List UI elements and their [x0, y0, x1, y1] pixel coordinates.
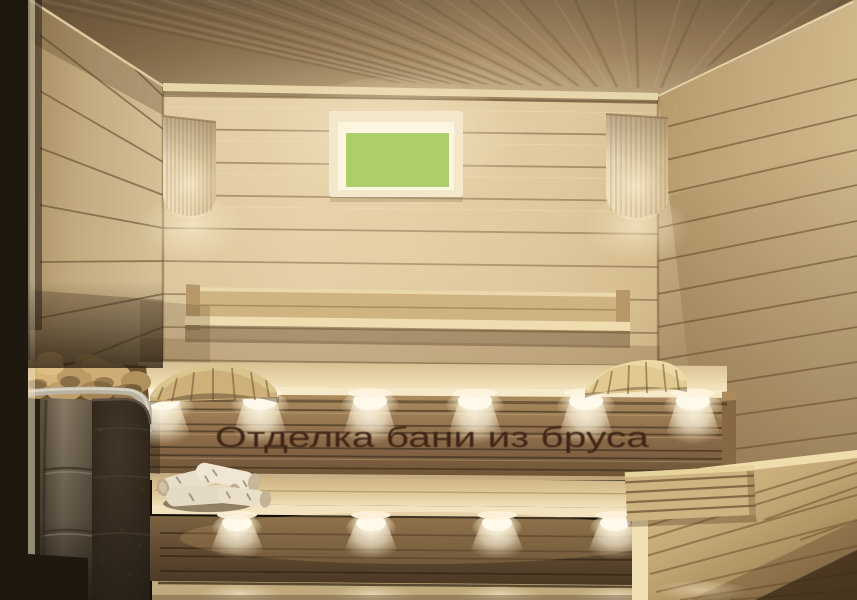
svg-text:Отделка бани из бруса: Отделка бани из бруса [215, 422, 650, 454]
